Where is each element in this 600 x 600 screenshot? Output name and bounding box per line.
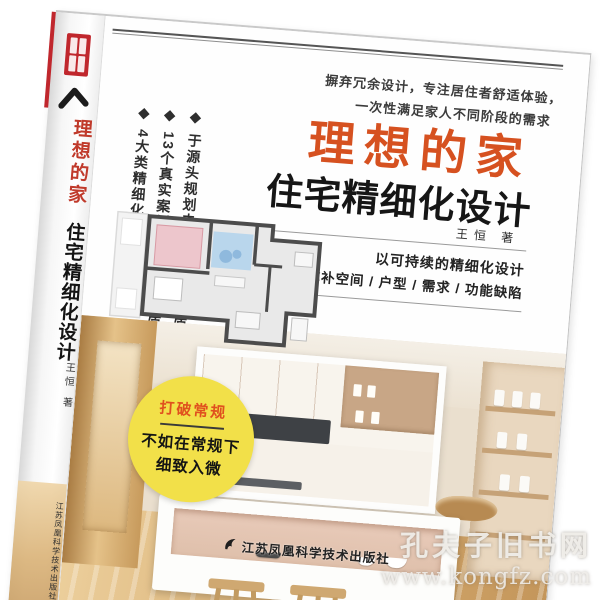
roof-logo-icon — [58, 85, 90, 116]
spine-author: 王恒 著 — [24, 359, 77, 412]
book: 理想的家 住宅精细化设计 王恒 著 江苏凤凰科学技术出版社 ◆ 于源头规划未来1… — [5, 10, 592, 600]
floor-plan-graphic — [105, 203, 338, 362]
spine-publisher: 江苏凤凰科学技术出版社 — [9, 498, 66, 600]
spine-title: 理想的家 — [40, 116, 96, 208]
publisher-seal-stamp-icon — [64, 33, 91, 77]
badge-divider — [160, 423, 224, 430]
badge-headline: 打破常规 — [159, 397, 228, 423]
phoenix-logo-icon — [222, 536, 238, 555]
wooden-stool — [202, 578, 265, 600]
book-product-photo: 理想的家 住宅精细化设计 王恒 著 江苏凤凰科学技术出版社 ◆ 于源头规划未来1… — [0, 0, 600, 600]
watermark-site-name: 孔夫子旧书网 — [381, 524, 592, 564]
kongfz-watermark: 孔夫子旧书网 www.kongfz.com — [381, 524, 592, 590]
badge-line2: 细致入微 — [155, 454, 223, 482]
watermark-url: www.kongfz.com — [381, 564, 592, 590]
front-cover: ◆ 于源头规划未来15年家庭居住方案 ◆ 13个真实案例探索理想家居打造法 ◆ … — [55, 16, 591, 600]
top-double-rule — [112, 29, 563, 70]
